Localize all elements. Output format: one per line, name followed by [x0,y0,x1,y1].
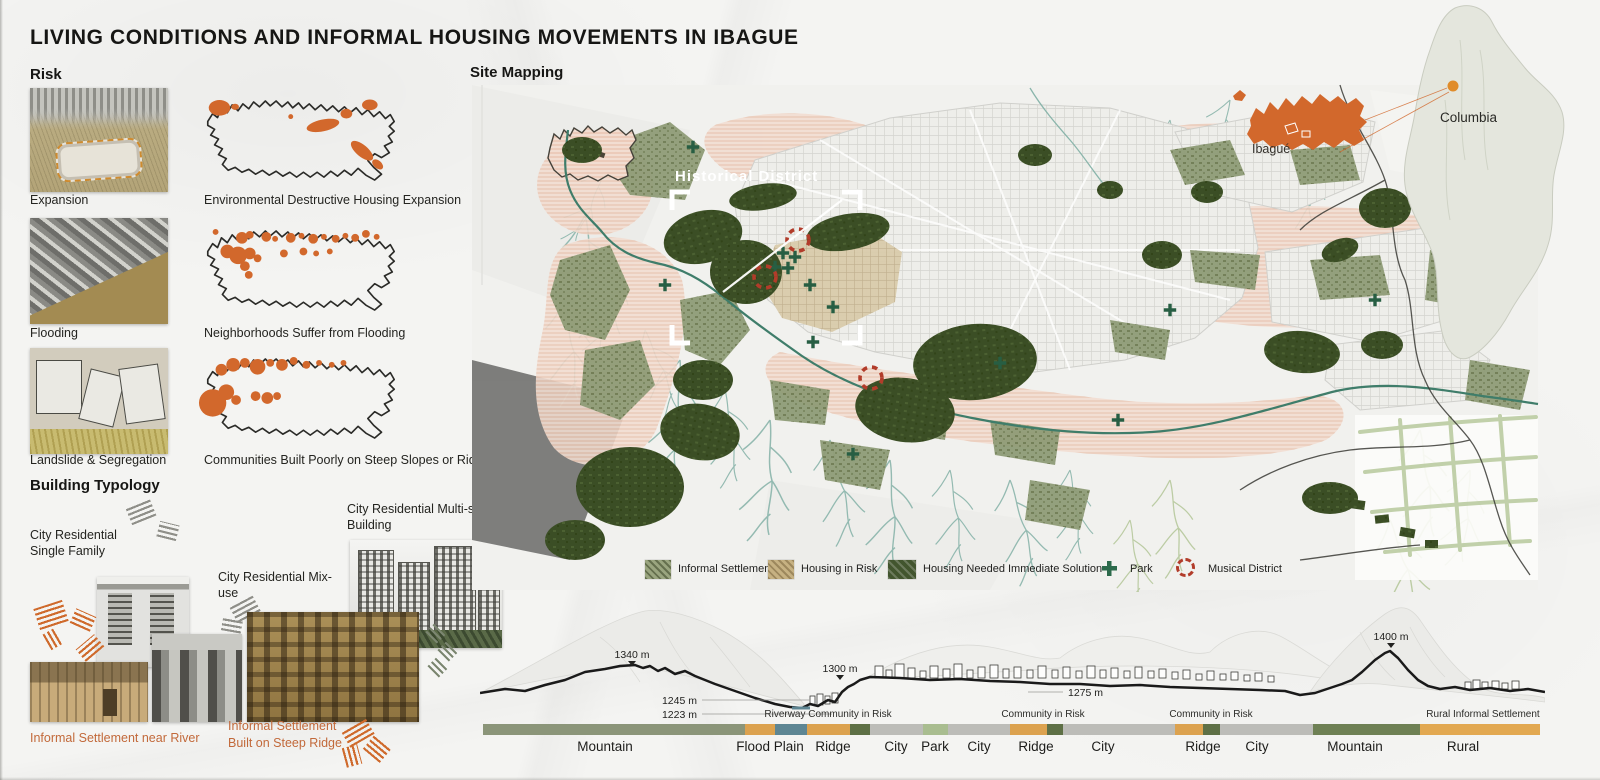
annotation-riverway-community: Riverway Community in Risk [764,709,891,720]
bar-flood [745,724,775,735]
legend-park: Park [1130,563,1153,575]
landslide-shack [118,363,165,424]
risk-map-expansion-caption: Environmental Destructive Housing Expans… [204,193,461,207]
near-river-label: Informal Settlement near River [30,731,200,745]
flooding-photo-label: Flooding [30,326,78,340]
bar-city [870,724,923,735]
columbia-label: Columbia [1440,110,1498,125]
park-cross-icon [1102,561,1117,576]
bar-riverway [775,724,807,735]
footprint-hatch-icon [156,521,179,541]
single-family-label: City Residential Single Family [30,528,148,559]
expansion-photo-label: Expansion [30,193,88,207]
mix-use-photo [152,634,242,722]
bar-ridge-amber [1010,724,1047,735]
landslide-ground [30,429,168,454]
terrain-label-city-2: City [967,739,990,754]
footprint-hatch-icon-orange [42,628,63,651]
marker-1245: 1245 m [662,695,697,707]
near-river-door [103,689,117,716]
marker-1400: 1400 m [1373,631,1408,643]
annotation-rural-informal: Rural Informal Settlement [1426,709,1539,720]
bar-park [923,724,948,735]
expansion-photo [30,88,168,192]
terrain-label-ridge-2: Ridge [1018,739,1053,754]
terrain-label-city-4: City [1245,739,1268,754]
site-map: Historical District Ibagué Columbia [470,0,1600,592]
risk-map-slopes-caption: Communities Built Poorly on Steep Slopes… [204,453,496,467]
landslide-photo [30,348,168,454]
marker-1300: 1300 m [822,663,857,675]
terrain-label-ridge-1: Ridge [815,739,850,754]
bar-ridge [1203,724,1220,735]
marker-1340: 1340 m [614,649,649,661]
terrain-label-ridge-3: Ridge [1185,739,1220,754]
annotation-community-risk-1: Community in Risk [1001,709,1084,720]
footprint-hatch-icon [126,499,157,525]
bar-mountain [1313,724,1420,735]
terrain-label-city-1: City [884,739,907,754]
informal-settlement-swatch-icon [645,560,671,579]
marker-1223: 1223 m [662,709,697,721]
landslide-photo-label: Landslide & Segregation [30,453,166,467]
bar-city [948,724,1010,735]
risk-map-flooding [198,222,403,320]
risk-map-flooding-blobs [213,229,380,279]
single-family-windows [108,593,132,645]
landslide-shack [36,360,82,414]
risk-map-flooding-caption: Neighborhoods Suffer from Flooding [204,326,405,340]
bar-rural [1420,724,1540,735]
footprint-hatch-icon-orange [70,608,97,632]
expansion-photo-city [30,88,168,125]
flooding-photo-roofs [30,218,168,324]
ibague-location-dot [1448,81,1459,92]
bar-flood [807,724,850,735]
bar-mountain [483,724,745,735]
mix-use-storefronts [152,650,242,722]
bar-ridge [850,724,870,735]
bar-city [1220,724,1313,735]
page-edge-left [0,0,3,780]
footprint-hatch-icon-green [427,656,448,677]
building-typology-heading: Building Typology [30,477,160,494]
terrain-label-mountain-1: Mountain [577,739,633,754]
bar-ridge [1047,724,1063,735]
elevation-profile: 1340 m 1245 m 1223 m 1300 m 1275 m 1400 … [480,592,1545,725]
terrain-color-bar [483,724,1540,735]
footprint-hatch-icon-orange [342,744,363,767]
musical-district-ring-icon [1176,558,1195,577]
steep-ridge-photo [247,612,419,722]
annotation-community-risk-2: Community in Risk [1169,709,1252,720]
near-river-photo [30,662,148,722]
steep-ridge-label-line2: Built on Steep Ridge [228,736,342,750]
legend-musical-district: Musical District [1208,563,1282,575]
bar-ridge-amber [1175,724,1203,735]
terrain-label-floodplain: Flood Plain [736,739,804,754]
terrain-label-rural: Rural [1447,739,1479,754]
mix-use-label: City Residential Mix-use [218,570,336,601]
terrain-label-city-3: City [1091,739,1114,754]
ibague-label: Ibagué [1252,142,1290,156]
expansion-photo-debris-outline [55,137,144,183]
risk-map-slopes [198,350,403,448]
footprint-hatch-icon-orange [33,600,68,630]
housing-in-risk-swatch-icon [768,560,794,579]
poster: LIVING CONDITIONS AND INFORMAL HOUSING M… [0,0,1600,780]
housing-immediate-swatch-icon [888,560,916,579]
steep-ridge-label-line1: Informal Settlement [228,719,336,733]
terrain-label-park: Park [921,739,949,754]
footprint-hatch-icon-orange [363,735,391,763]
historical-district-label: Historical District [675,168,818,185]
flooding-photo [30,218,168,324]
legend-informal-settlement: Informal Settlement [678,563,773,575]
marker-1275: 1275 m [1068,687,1103,699]
risk-heading: Risk [30,66,62,83]
terrain-label-mountain-2: Mountain [1327,739,1383,754]
risk-map-expansion [198,92,403,190]
legend-housing-in-risk: Housing in Risk [801,563,877,575]
map-farmland [1355,415,1538,580]
legend-housing-immediate: Housing Needed Immediate Solution [923,563,1102,575]
bar-city [1063,724,1175,735]
footprint-hatch-icon [221,616,243,633]
